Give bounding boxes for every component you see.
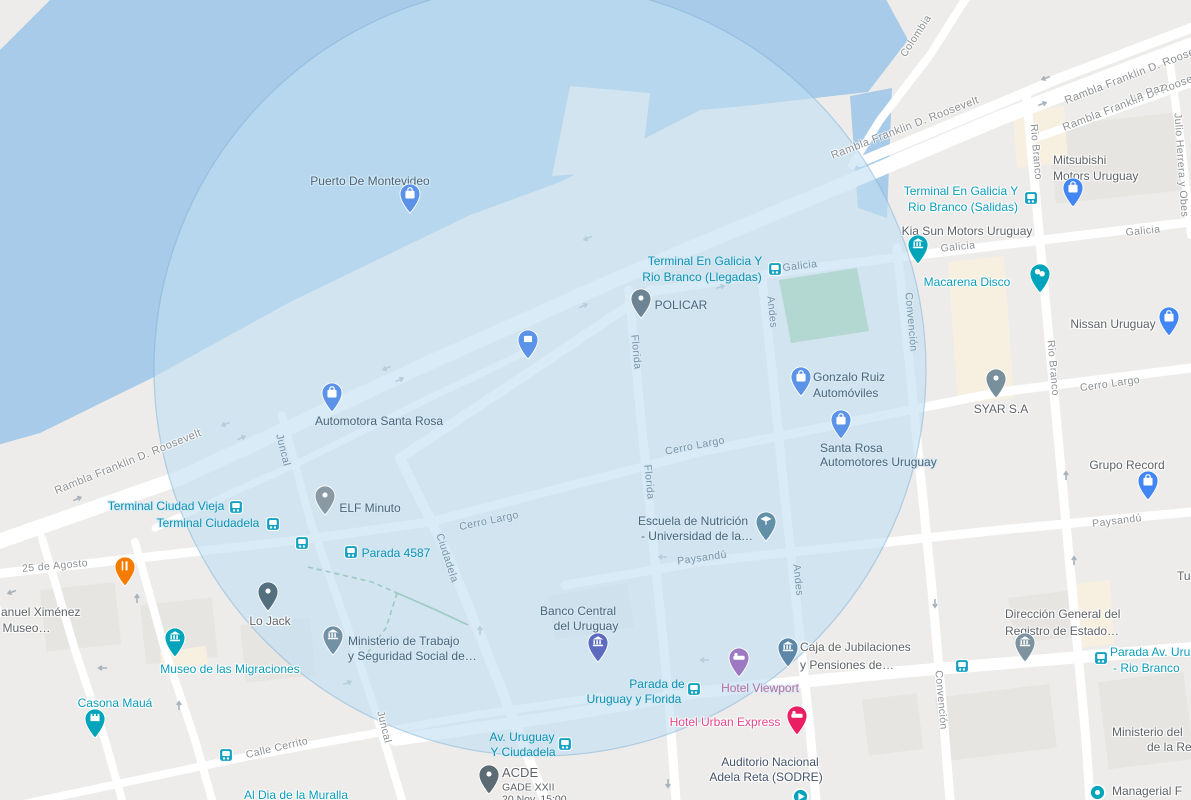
poi-label-parada-4587[interactable]: Parada 4587 (362, 546, 431, 560)
parada-4587-stop-icon[interactable] (344, 545, 358, 559)
poi-label-acde-event[interactable]: GADE XXII (502, 782, 555, 795)
street-label-rambla-franklin-d-roosevelt: Rambla Franklin D. Roosevelt (53, 427, 203, 497)
poi-label-terminal-galicia-rio-branco-salidas[interactable]: Rio Branco (Salidas) (908, 200, 1018, 214)
macarena-disco-masks-pin-icon[interactable] (1029, 263, 1051, 294)
street-label-andes: Andes (790, 564, 805, 597)
poi-label-nissan-uruguay[interactable]: Nissan Uruguay (1070, 317, 1155, 331)
poi-label-direccion-general-registro[interactable]: Dirección General del (1005, 607, 1120, 621)
street-label-convenci-n: Convención (902, 292, 919, 352)
poi-label-automotora-santa-rosa[interactable]: Automotora Santa Rosa (315, 414, 443, 428)
poi-label-lo-jack[interactable]: Lo Jack (249, 614, 290, 628)
syar-sa-dotg-pin-icon[interactable] (985, 368, 1007, 399)
map-canvas[interactable]: Rambla Franklin D. RooseveltRambla Frank… (0, 0, 1191, 800)
poi-label-caja-de-jubilaciones[interactable]: y Pensiones de… (800, 658, 894, 672)
street-label-rio-branco: Rio Branco (1028, 124, 1045, 181)
poi-label-macarena-disco[interactable]: Macarena Disco (924, 275, 1011, 289)
poi-label-ministerio-de-la-republica[interactable]: Ministerio del (1112, 725, 1183, 739)
hotel-viewport-bed-pin-icon[interactable] (728, 647, 750, 678)
acde-event-dotg-pin-icon[interactable] (478, 764, 500, 795)
poi-label-gonzalo-ruiz-automoviles[interactable]: Gonzalo Ruiz (813, 370, 885, 384)
street-label-25-de-agosto: 25 de Agosto (22, 557, 89, 575)
street-label-paysand-: Paysandú (1092, 512, 1143, 530)
terminal-galicia-rio-branco-salidas-stop-icon[interactable] (1024, 191, 1038, 205)
poi-label-parada-av-uruguay-y-ciudadela[interactable]: Y Ciudadela (490, 745, 555, 759)
poi-label-ministerio-de-la-republica[interactable]: de la Rep (1147, 740, 1191, 754)
poi-label-terminal-ciudad-vieja[interactable]: Terminal Ciudad Vieja (108, 499, 225, 513)
mitsubishi-motors-uruguay-bag-pin-icon[interactable] (1062, 177, 1084, 208)
poi-label-hotel-viewport[interactable]: Hotel Viewport (721, 681, 799, 695)
poi-label-gonzalo-ruiz-automoviles[interactable]: Automóviles (813, 386, 878, 400)
automotora-santa-rosa-bag-pin-icon[interactable] (321, 382, 343, 413)
street-label-paysand-: Paysandú (676, 549, 727, 568)
kia-sun-motors-uruguay-bank-pin-icon[interactable] (907, 234, 929, 265)
poi-label-auditorio-nacional-adela-reta-sodre[interactable]: Auditorio Nacional (721, 755, 818, 769)
poi-label-ministerio-de-trabajo[interactable]: Ministerio de Trabajo (348, 634, 459, 648)
terminal-galicia-rio-branco-llegadas-stop-icon[interactable] (768, 262, 782, 276)
banco-central-del-uruguay-bank-pin-icon[interactable] (587, 632, 609, 663)
street-label-colombia: Colombia (898, 13, 934, 59)
poi-label-tu-partial[interactable]: Tu (1177, 569, 1191, 583)
elf-minuto-dotg-pin-icon[interactable] (314, 485, 336, 516)
poi-label-ministerio-de-trabajo[interactable]: y Seguridad Social de… (348, 649, 477, 663)
escuela-de-nutricion-cap-pin-icon[interactable] (755, 511, 777, 542)
poi-label-parada-de-uruguay-y-florida[interactable]: Uruguay y Florida (587, 692, 682, 706)
street-label-cerro-largo: Cerro Largo (1079, 374, 1141, 394)
street-label-cerro-largo: Cerro Largo (458, 509, 520, 533)
bus-stop-stop-icon[interactable] (295, 536, 309, 550)
parada-de-uruguay-y-florida-stop-icon[interactable] (687, 682, 701, 696)
managerial-dot-circle-pin-icon[interactable] (1089, 784, 1106, 800)
poi-label-parada-av-uruguay-rio-branco[interactable]: Parada Av. Uru (1110, 645, 1190, 659)
poi-label-syar-sa[interactable]: SYAR S.A (974, 402, 1028, 416)
puerto-de-montevideo-bag-pin-icon[interactable] (399, 183, 421, 214)
hotel-urban-express-bed-pin-icon[interactable] (786, 705, 808, 736)
nissan-uruguay-bag-pin-icon[interactable] (1158, 306, 1180, 337)
street-label-calle-cerrito: Calle Cerrito (245, 735, 310, 761)
poi-label-acde-event[interactable]: ACDE (502, 765, 538, 781)
direccion-general-registro-bank-pin-icon[interactable] (1014, 632, 1036, 663)
street-label-florida: Florida (628, 334, 644, 370)
poi-label-hotel-urban-express[interactable]: Hotel Urban Express (670, 715, 781, 729)
parada-av-uruguay-rio-branco-stop-icon[interactable] (1094, 651, 1108, 665)
poi-label-managerial[interactable]: Managerial F (1112, 784, 1182, 798)
street-label-convenci-n: Convención (932, 670, 949, 730)
bus-stop-stop-icon[interactable] (955, 659, 969, 673)
poi-label-terminal-galicia-rio-branco-llegadas[interactable]: Rio Branco (Llegadas) (642, 270, 761, 284)
santa-rosa-automotores-uruguay-bag-pin-icon[interactable] (830, 409, 852, 440)
street-label-ciudadela: Ciudadela (433, 532, 460, 584)
street-label-julio-herrera-y-obes: Julio Herrera y Obes (1171, 113, 1190, 218)
poi-label-escuela-de-nutricion[interactable]: Escuela de Nutrición (638, 514, 748, 528)
poi-label-terminal-galicia-rio-branco-llegadas[interactable]: Terminal En Galicia Y (648, 254, 763, 268)
gonzalo-ruiz-automoviles-bag-pin-icon[interactable] (790, 366, 812, 397)
poi-label-banco-central-del-uruguay[interactable]: Banco Central (540, 604, 616, 618)
street-label-andes: Andes (764, 296, 779, 329)
poi-label-manuel-ximenez-museo[interactable]: | Museo… (0, 621, 50, 635)
caja-de-jubilaciones-bank-pin-icon[interactable] (777, 637, 799, 668)
poi-label-policar[interactable]: POLICAR (655, 298, 708, 312)
poi-label-al-dia-de-la-muralla[interactable]: Al Dia de la Muralla (244, 788, 348, 800)
poi-label-parada-av-uruguay-rio-branco[interactable]: - Rio Branco (1113, 661, 1180, 675)
policar-dotg-pin-icon[interactable] (630, 288, 652, 319)
auditorio-nacional-adela-reta-sodre-play-circle-pin-icon[interactable] (792, 788, 809, 800)
poi-layer: Rambla Franklin D. RooseveltRambla Frank… (0, 0, 1191, 800)
poi-label-caja-de-jubilaciones[interactable]: Caja de Jubilaciones (800, 640, 911, 654)
poi-label-parada-de-uruguay-y-florida[interactable]: Parada de (629, 677, 684, 691)
street-label-cerro-largo: Cerro Largo (664, 434, 726, 457)
street-label-galicia: Galicia (940, 239, 976, 255)
street-label-galicia: Galicia (1125, 223, 1161, 239)
street-label-florida: Florida (641, 464, 657, 500)
poi-label-acde-event[interactable]: 20 Nov, 15:00 (502, 794, 567, 800)
grupo-record-bag-pin-icon[interactable] (1137, 470, 1159, 501)
unnamed-place-square-pin-icon[interactable] (517, 329, 539, 360)
bus-stop-stop-icon[interactable] (219, 748, 233, 762)
museo-de-las-migraciones-bank-pin-icon[interactable] (164, 627, 186, 658)
poi-label-auditorio-nacional-adela-reta-sodre[interactable]: Adela Reta (SODRE) (709, 770, 822, 784)
terminal-ciudadela-stop-icon[interactable] (266, 517, 280, 531)
poi-label-museo-de-las-migraciones[interactable]: Museo de las Migraciones (160, 662, 299, 676)
parada-av-uruguay-y-ciudadela-stop-icon[interactable] (558, 737, 572, 751)
street-label-juncal: Juncal (273, 433, 293, 468)
street-label-juncal: Juncal (374, 710, 394, 745)
poi-label-elf-minuto[interactable]: ELF Minuto (339, 501, 400, 515)
ministerio-de-trabajo-bank-pin-icon[interactable] (322, 625, 344, 656)
street-label-rio-branco: Rio Branco (1045, 340, 1062, 397)
street-label-rambla-franklin-d-roosevelt: Rambla Franklin D. Roosevelt (829, 94, 980, 162)
poi-label-manuel-ximenez-museo[interactable]: Manuel Ximénez (0, 605, 80, 619)
restaurant-place-food-pin-icon[interactable] (114, 556, 136, 587)
poi-label-terminal-ciudadela[interactable]: Terminal Ciudadela (157, 516, 260, 530)
poi-label-santa-rosa-automotores-uruguay[interactable]: Santa Rosa (820, 441, 883, 455)
poi-label-terminal-galicia-rio-branco-salidas[interactable]: Terminal En Galicia Y (904, 184, 1019, 198)
lo-jack-dotg-pin-icon[interactable] (257, 581, 279, 612)
poi-label-escuela-de-nutricion[interactable]: - Universidad de la… (641, 529, 753, 543)
poi-label-mitsubishi-motors-uruguay[interactable]: Mitsubishi (1053, 153, 1106, 167)
street-label-galicia: Galicia (782, 258, 818, 274)
poi-label-parada-av-uruguay-y-ciudadela[interactable]: Av. Uruguay (490, 730, 555, 744)
poi-label-santa-rosa-automotores-uruguay[interactable]: Automotores Uruguay (820, 455, 937, 469)
terminal-ciudad-vieja-stop-icon[interactable] (229, 500, 243, 514)
casona-maua-castle-pin-icon[interactable] (84, 708, 106, 739)
